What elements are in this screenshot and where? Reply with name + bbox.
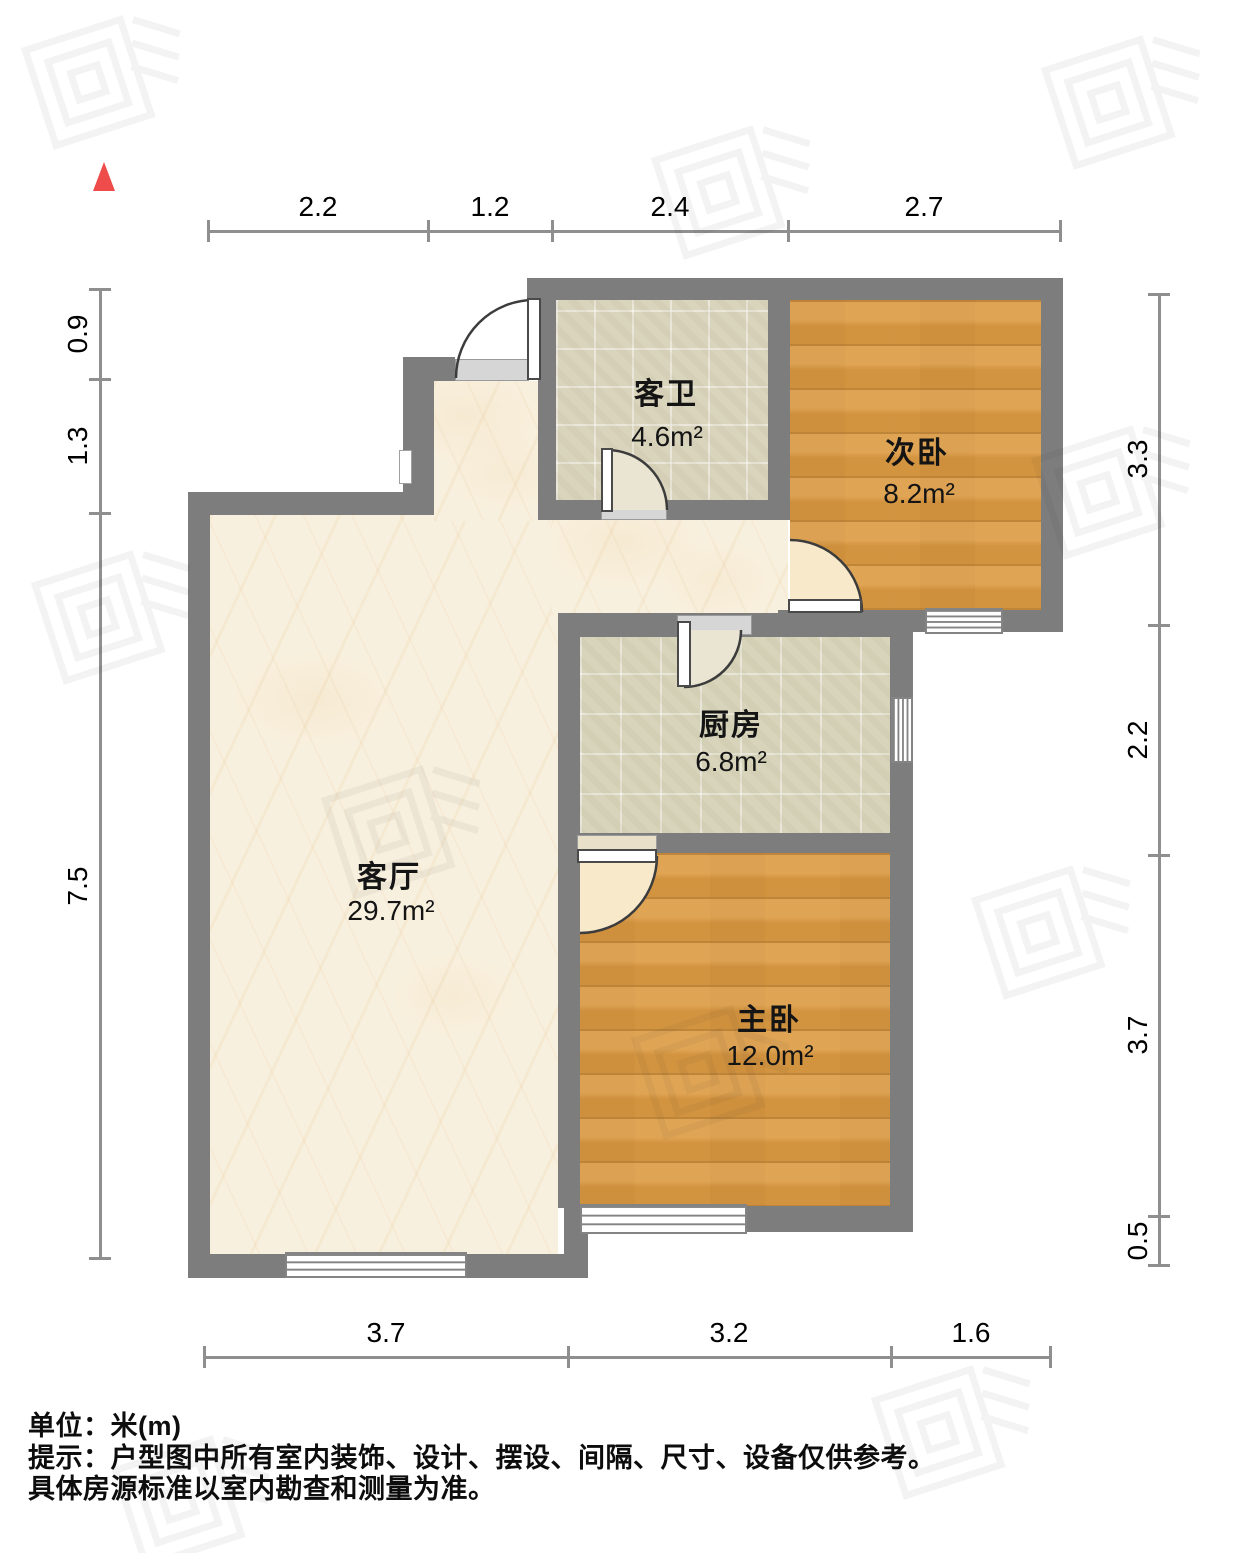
watermark-logo-icon (13, 0, 215, 163)
watermark-logo-icon (863, 1337, 1065, 1513)
master-bedroom-window (580, 1204, 747, 1234)
bathroom-area: 4.6m² (631, 421, 703, 453)
living-room-area: 29.7m² (347, 895, 434, 927)
master-bedroom-label: 主卧 (737, 995, 801, 1039)
master-bedroom-area: 12.0m² (726, 1040, 813, 1072)
dim-tick (427, 220, 430, 242)
kitchen-area: 6.8m² (695, 746, 767, 778)
dim-left-1: 0.9 (62, 315, 94, 354)
living-room-window (285, 1252, 467, 1278)
dim-tick (1148, 1264, 1170, 1267)
bathroom-label: 客卫 (634, 369, 698, 413)
dim-top-2: 1.2 (471, 191, 510, 223)
dim-right-3: 3.7 (1122, 1016, 1154, 1055)
entry-door-leaf (527, 298, 541, 380)
dim-tick (89, 378, 111, 381)
dim-right-2: 2.2 (1122, 721, 1154, 760)
dim-line-right (1158, 294, 1161, 1266)
bedroom2-window (925, 608, 1003, 634)
wall-left-outer (188, 492, 210, 1278)
dim-line-left (99, 289, 102, 1259)
wall-top (527, 278, 1063, 300)
dim-bottom-1: 3.7 (367, 1317, 406, 1349)
dim-tick (567, 1346, 570, 1368)
dim-tick (1059, 220, 1062, 242)
master-door-leaf (577, 849, 657, 863)
dim-line-top (208, 230, 1061, 233)
master-bedroom-floor (580, 853, 890, 1208)
dim-bottom-3: 1.6 (952, 1317, 991, 1349)
watermark-logo-icon (1033, 7, 1235, 183)
dim-line-bottom (204, 1356, 1051, 1359)
dim-tick (89, 288, 111, 291)
dim-bottom-2: 3.2 (710, 1317, 749, 1349)
watermark-logo-icon (643, 97, 845, 273)
wall-bed2-right (1041, 278, 1063, 632)
bedroom2-label: 次卧 (885, 428, 949, 472)
dim-tick (1049, 1346, 1052, 1368)
watermark (963, 837, 1166, 1018)
bedroom2-door-leaf (788, 599, 862, 613)
wall-living-top (188, 492, 434, 515)
wall-bath-bed2-divider (768, 278, 790, 520)
dim-top-3: 2.4 (651, 191, 690, 223)
floorplan-canvas: 客卫 4.6m² 次卧 8.2m² 厨房 6.8m² 客厅 29.7m² 主卧 … (0, 0, 1260, 1553)
dim-tick (1148, 1215, 1170, 1218)
entry-hall-floor (434, 381, 538, 521)
dim-tick (890, 1346, 893, 1368)
north-triangle-icon (93, 162, 115, 191)
watermark (1033, 7, 1236, 188)
bedroom2-area: 8.2m² (883, 478, 955, 510)
dim-right-4: 0.5 (1122, 1222, 1154, 1261)
dim-left-3: 7.5 (62, 867, 94, 906)
footer-note-line: 具体房源标准以室内勘查和测量为准。 (28, 1467, 496, 1506)
kitchen-door-leaf (677, 621, 691, 687)
dim-tick (787, 220, 790, 242)
dim-tick (89, 1257, 111, 1260)
dim-tick (1148, 293, 1170, 296)
watermark (863, 1337, 1066, 1518)
kitchen-window (891, 697, 913, 763)
dim-top-4: 2.7 (905, 191, 944, 223)
corridor-floor (552, 518, 788, 615)
bathroom-door-leaf (601, 448, 613, 512)
watermark (13, 0, 216, 168)
dim-tick (551, 220, 554, 242)
watermark-logo-icon (963, 837, 1165, 1013)
entry-wall-niche (399, 450, 412, 484)
kitchen-label: 厨房 (699, 700, 763, 744)
wall-living-kitchen-divider (558, 613, 580, 1208)
watermark (643, 97, 846, 278)
dim-tick (203, 1346, 206, 1368)
living-room-label: 客厅 (357, 852, 421, 896)
entry-threshold (455, 359, 529, 381)
dim-tick (207, 220, 210, 242)
dim-left-2: 1.3 (62, 427, 94, 466)
dim-tick (1148, 624, 1170, 627)
dim-tick (89, 512, 111, 515)
dim-top-1: 2.2 (299, 191, 338, 223)
dim-tick (1148, 854, 1170, 857)
dim-right-1: 3.3 (1122, 440, 1154, 479)
